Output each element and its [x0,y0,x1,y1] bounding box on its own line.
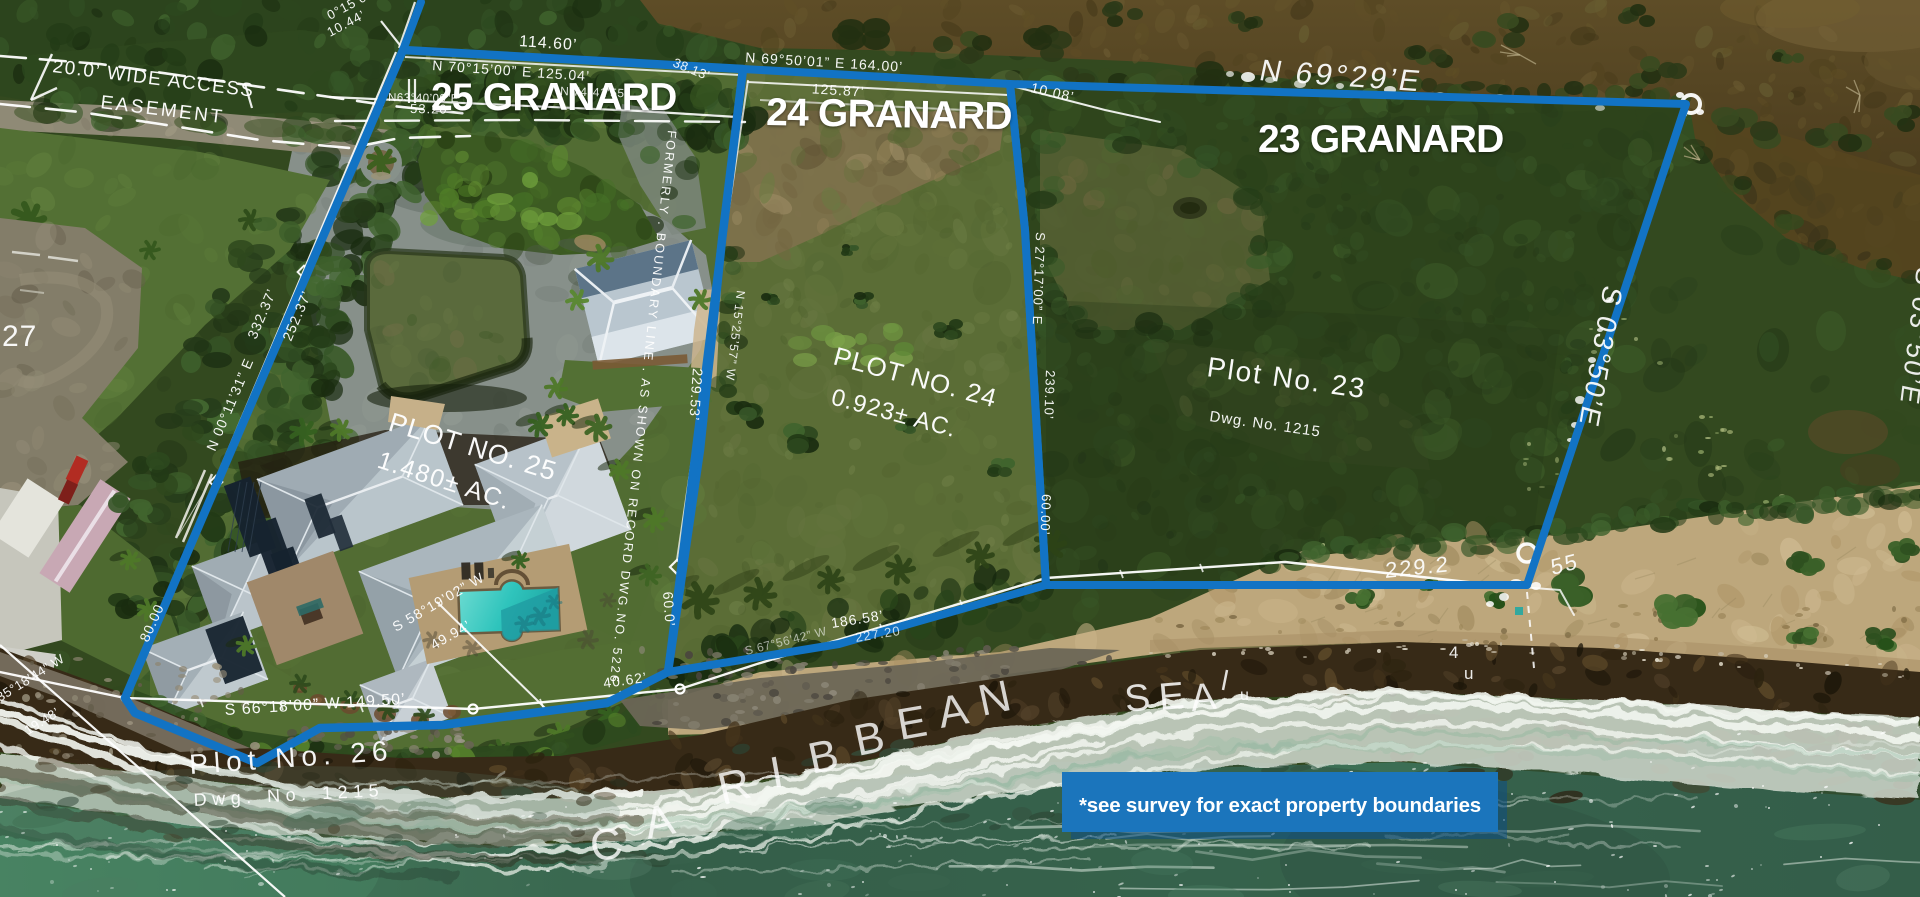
svg-text:125.87’: 125.87’ [811,80,865,99]
svg-text:N 74°41’55”: N 74°41’55” [560,84,629,100]
svg-text:E: E [1157,675,1186,719]
svg-text:*see survey for exact property: *see survey for exact property boundarie… [1079,794,1481,817]
svg-text:u: u [1464,664,1473,683]
svg-text:u: u [1240,687,1249,704]
svg-text:A: A [1189,675,1219,719]
svg-text:60.00’: 60.00’ [1038,494,1054,536]
svg-text:23 GRANARD: 23 GRANARD [1258,118,1504,161]
svg-text:25 GRANARD: 25 GRANARD [431,76,677,119]
svg-text:60.0’: 60.0’ [660,591,678,627]
svg-text:4: 4 [1449,643,1458,662]
svg-text:S: S [1123,677,1153,721]
svg-text:24 GRANARD: 24 GRANARD [766,91,1012,138]
svg-text:239.10’: 239.10’ [1041,370,1058,420]
svg-text:27: 27 [2,320,37,353]
svg-text:53.20: 53.20 [410,101,448,117]
